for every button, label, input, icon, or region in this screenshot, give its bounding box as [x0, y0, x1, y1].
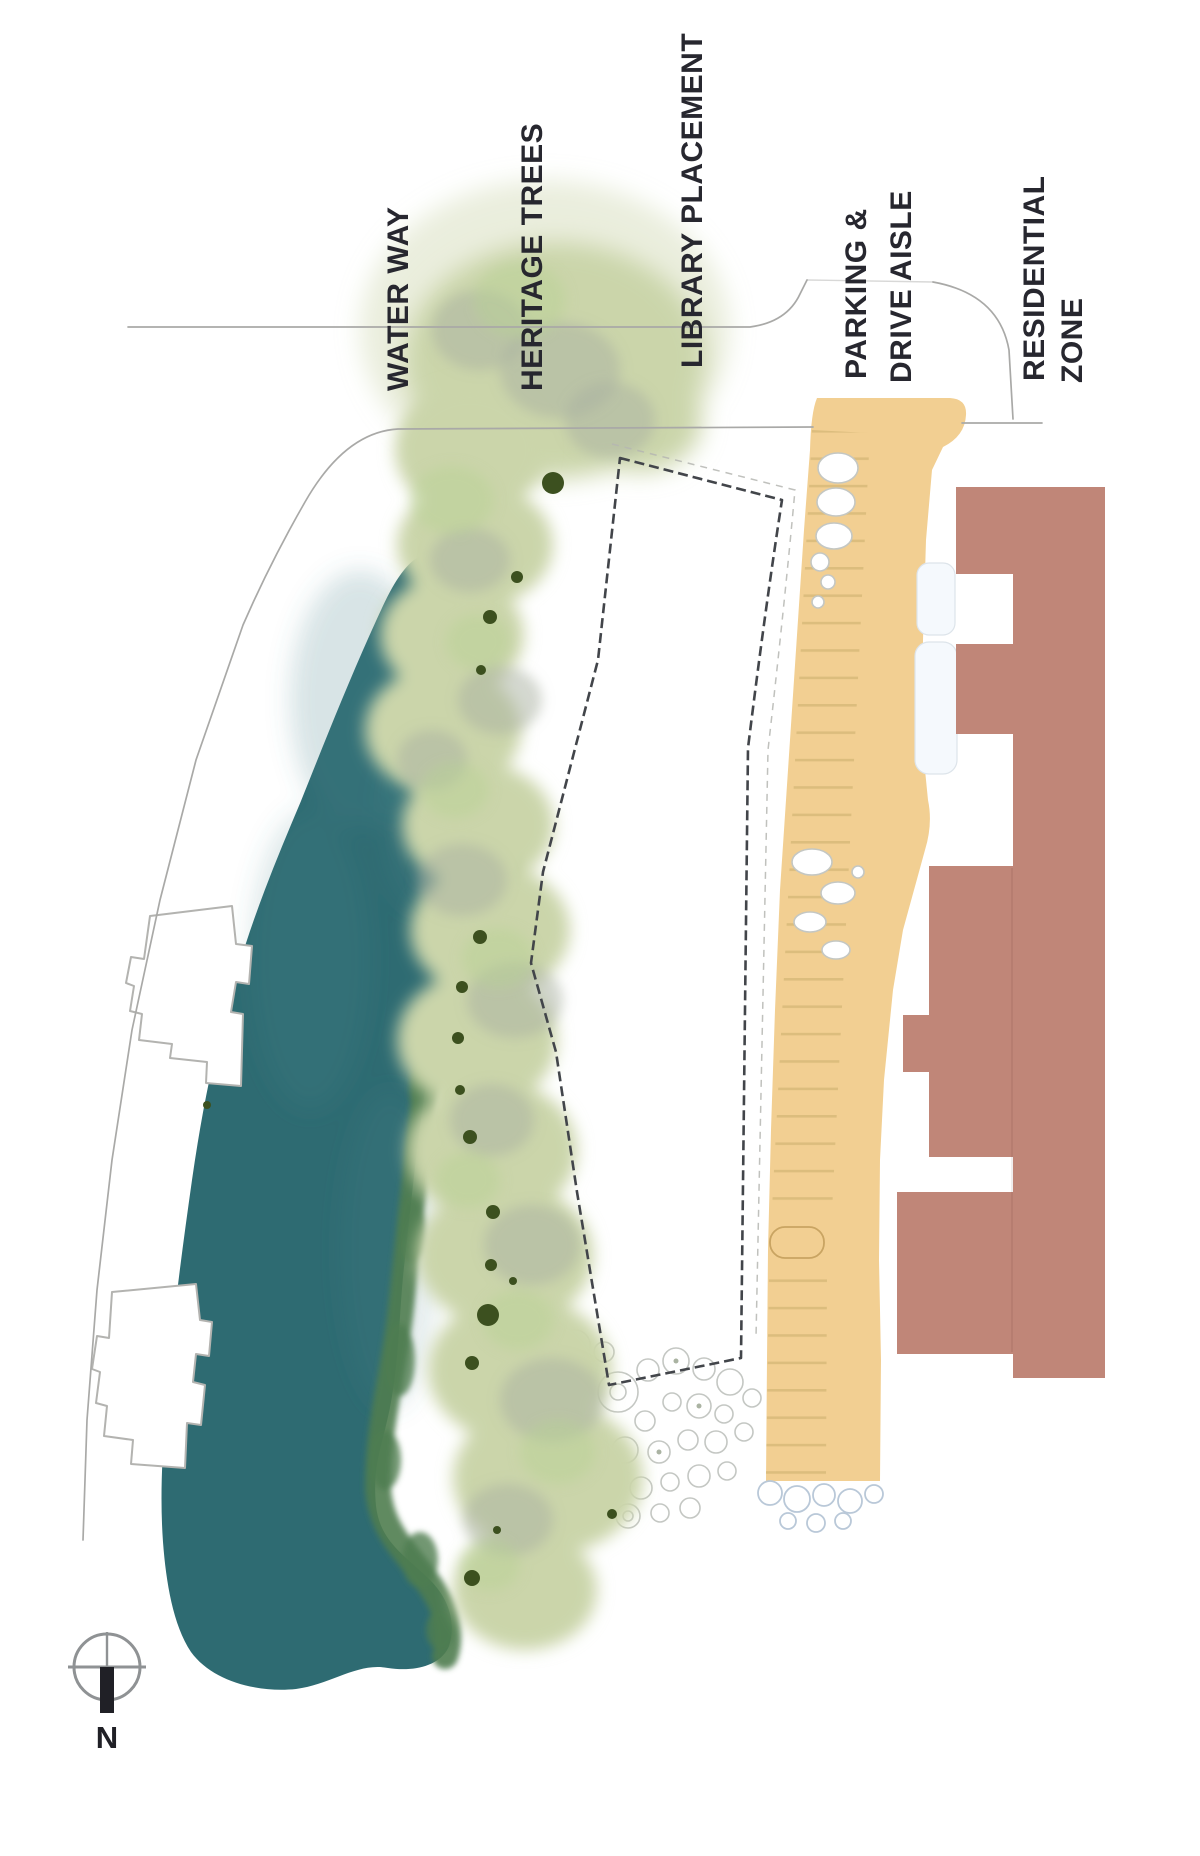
label-parking-line2: DRIVE AISLE [885, 190, 918, 383]
site-plan-drawing: N WATER WAY HERITAGE TREES LIBRARY PLACE… [0, 0, 1200, 1856]
north-compass-icon: N [68, 1632, 146, 1755]
label-library-placement: LIBRARY PLACEMENT [676, 33, 709, 368]
label-heritage-trees: HERITAGE TREES [516, 123, 549, 391]
compass-north-label: N [96, 1720, 118, 1755]
label-residential-line2: ZONE [1056, 298, 1089, 383]
planting-cluster-south [758, 1481, 883, 1532]
residential-wing [903, 866, 1013, 1157]
parking-stall-lines [766, 1272, 827, 1476]
walkway-pad [917, 563, 955, 635]
residential-wing [956, 487, 1014, 574]
label-water-way: WATER WAY [382, 206, 415, 391]
label-parking-line1: PARKING & [840, 208, 873, 379]
walkway-pad [915, 642, 957, 774]
existing-building-outline [126, 906, 252, 1086]
label-residential-line1: RESIDENTIAL [1018, 175, 1051, 381]
accessible-stall-marking [770, 1227, 824, 1258]
residential-wing [956, 644, 1014, 734]
residential-main-slab [1013, 487, 1105, 1378]
site-plan-page: N WATER WAY HERITAGE TREES LIBRARY PLACE… [0, 0, 1200, 1856]
residential-wing [897, 1192, 1013, 1354]
compass-needle [100, 1667, 114, 1713]
